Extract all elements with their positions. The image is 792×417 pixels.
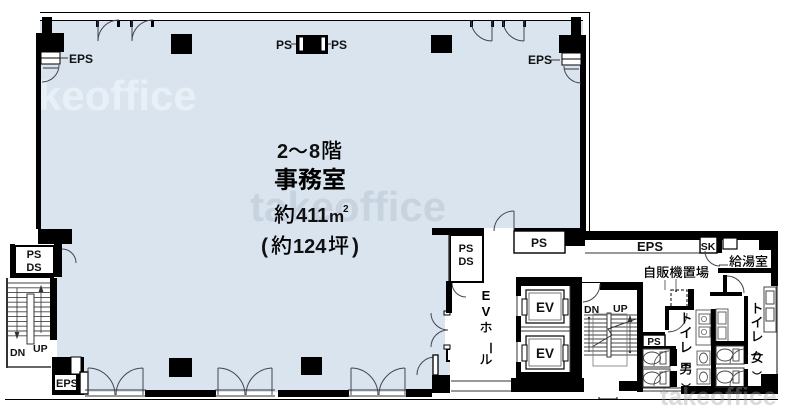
svg-text:EPS: EPS	[69, 52, 93, 66]
svg-text:EPS: EPS	[56, 378, 78, 390]
svg-text:EV: EV	[536, 346, 554, 361]
svg-text:SK: SK	[701, 241, 716, 253]
svg-text:PS: PS	[531, 236, 547, 250]
svg-text:2: 2	[277, 141, 288, 163]
svg-text:EV: EV	[536, 300, 554, 315]
svg-text:): )	[352, 235, 359, 258]
svg-text:(: (	[261, 235, 268, 258]
svg-text:EPS: EPS	[528, 53, 552, 67]
svg-text:DS: DS	[458, 256, 473, 268]
svg-text:124: 124	[293, 236, 327, 258]
svg-text:m: m	[329, 207, 344, 226]
svg-text:DN: DN	[10, 347, 25, 359]
svg-text:411: 411	[296, 205, 328, 227]
svg-text:PS: PS	[331, 38, 347, 52]
svg-text:UP: UP	[613, 303, 628, 315]
svg-text:PS: PS	[27, 249, 42, 261]
svg-text:8: 8	[309, 141, 320, 163]
svg-text:PS: PS	[276, 38, 292, 52]
svg-text:EPS: EPS	[637, 239, 663, 254]
svg-text:PS: PS	[459, 243, 474, 255]
svg-text:keoffice: keoffice	[38, 72, 197, 119]
svg-text:V: V	[482, 304, 491, 319]
svg-text:takeoffice: takeoffice	[660, 383, 777, 411]
svg-text:DN: DN	[584, 304, 599, 316]
svg-text:DS: DS	[26, 262, 41, 274]
svg-text:E: E	[482, 288, 491, 303]
svg-text:2: 2	[343, 204, 349, 215]
svg-text:UP: UP	[33, 343, 48, 355]
